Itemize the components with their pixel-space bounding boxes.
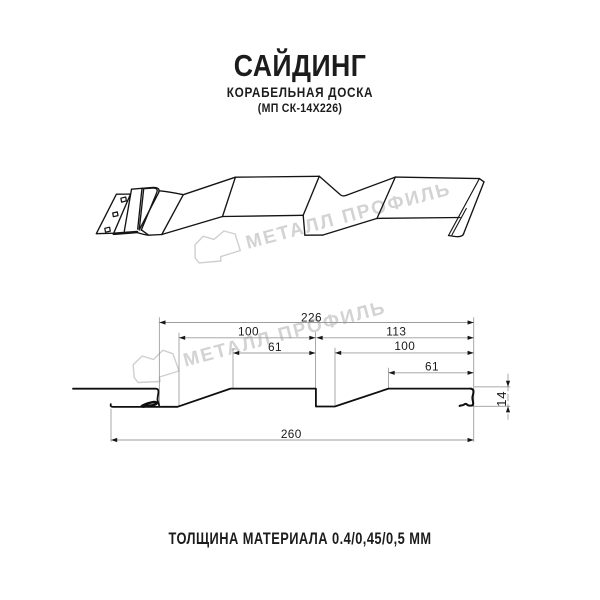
svg-text:61: 61 bbox=[268, 340, 282, 354]
svg-text:100: 100 bbox=[238, 325, 259, 339]
svg-text:226: 226 bbox=[301, 311, 322, 325]
svg-text:113: 113 bbox=[386, 325, 406, 339]
svg-text:100: 100 bbox=[394, 339, 415, 353]
svg-text:260: 260 bbox=[281, 427, 302, 441]
svg-text:61: 61 bbox=[425, 360, 439, 374]
svg-text:МЕТАЛЛ ПРОФИЛЬ: МЕТАЛЛ ПРОФИЛЬ bbox=[181, 297, 388, 371]
svg-text:14: 14 bbox=[494, 391, 509, 407]
